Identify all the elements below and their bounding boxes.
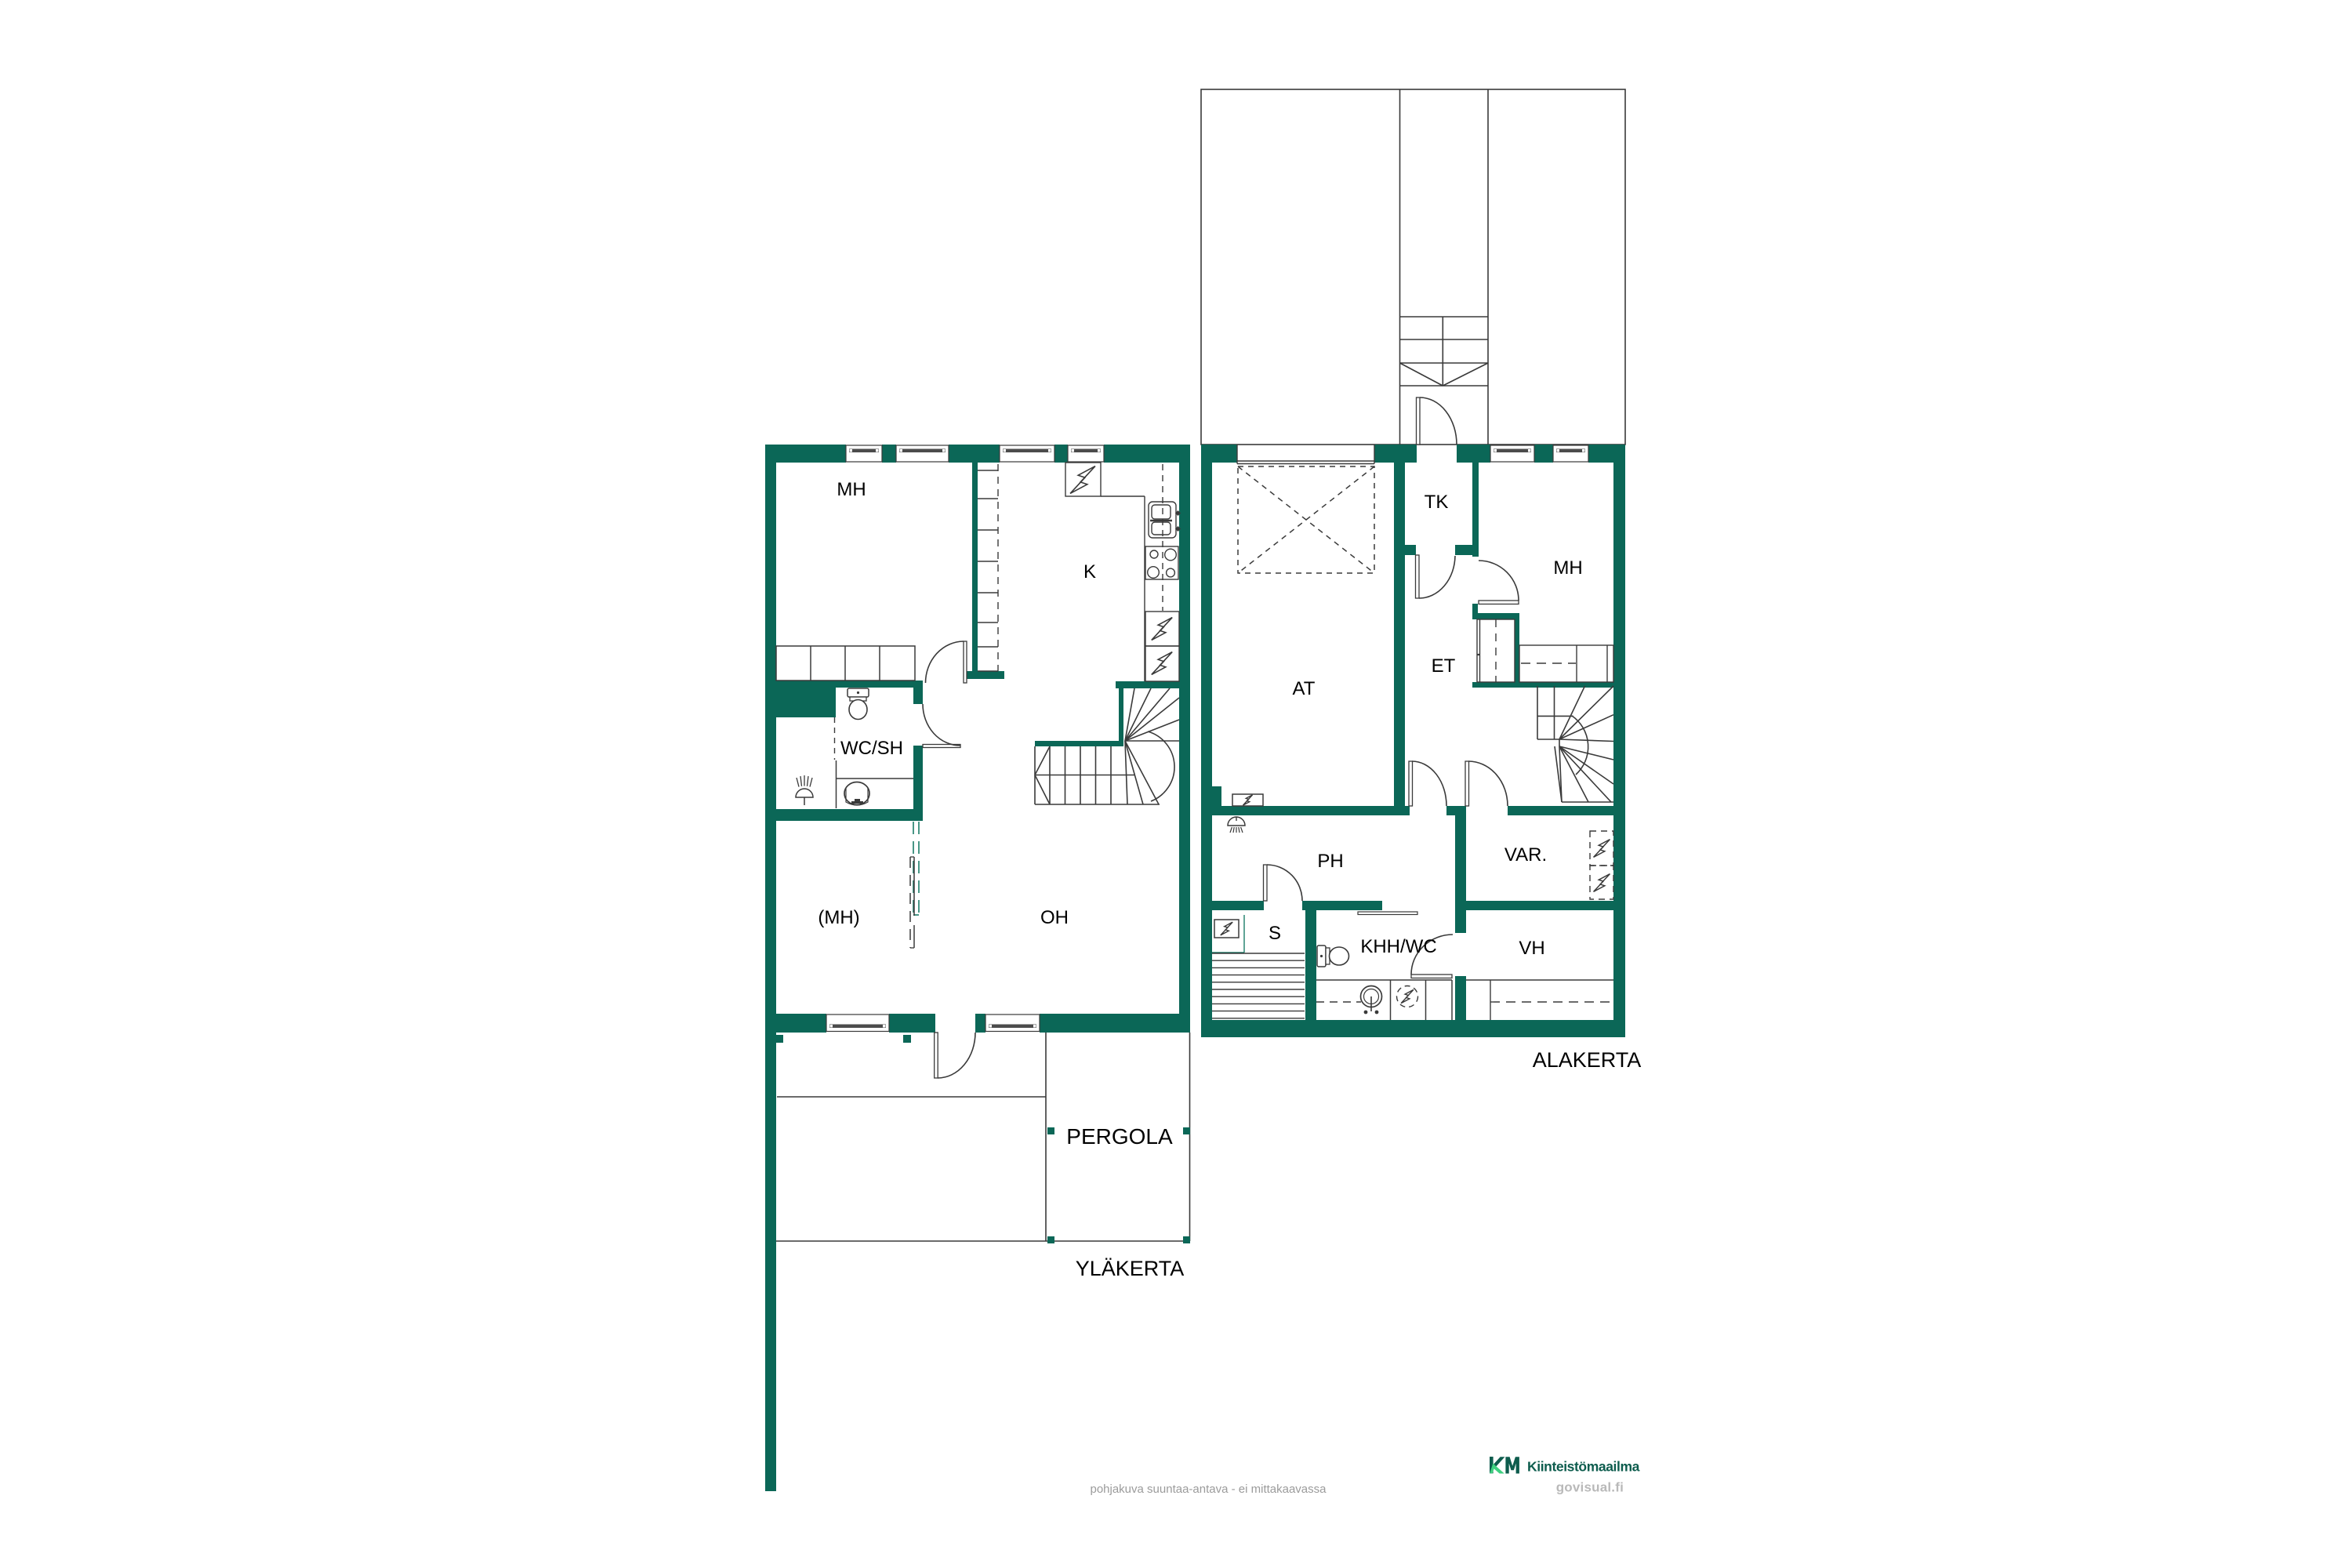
svg-text:YLÄKERTA: YLÄKERTA [1076,1257,1185,1280]
svg-text:VH: VH [1519,938,1544,959]
svg-text:VAR.: VAR. [1504,844,1547,866]
svg-text:pohjakuva suuntaa-antava - ei: pohjakuva suuntaa-antava - ei mittakaava… [1090,1483,1327,1496]
svg-text:PH: PH [1317,851,1343,872]
svg-text:KHH/WC: KHH/WC [1360,936,1436,957]
svg-text:(MH): (MH) [818,907,859,928]
svg-text:TK: TK [1425,492,1449,513]
svg-text:MH: MH [1553,557,1582,579]
svg-text:K: K [1083,561,1096,583]
svg-text:MH: MH [837,479,866,500]
svg-text:S: S [1269,923,1281,944]
svg-text:OH: OH [1040,907,1069,928]
svg-text:AT: AT [1293,678,1316,699]
svg-text:ET: ET [1432,655,1456,677]
svg-text:govisual.fi: govisual.fi [1556,1480,1624,1495]
svg-text:Kiinteistömaailma: Kiinteistömaailma [1527,1459,1640,1475]
svg-text:WC/SH: WC/SH [840,738,903,759]
svg-text:ALAKERTA: ALAKERTA [1533,1048,1642,1072]
svg-text:PERGOLA: PERGOLA [1066,1124,1173,1149]
